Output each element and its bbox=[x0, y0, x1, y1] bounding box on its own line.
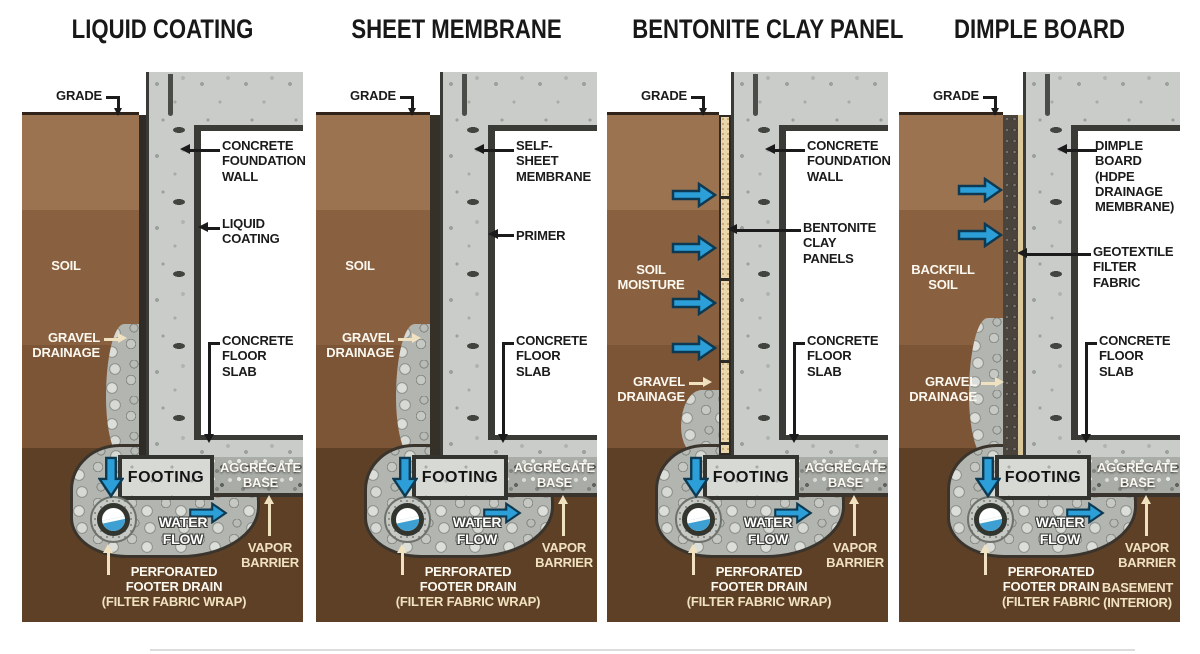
slab-label: CONCRETE FLOOR SLAB bbox=[516, 333, 597, 379]
drain-label: PERFORATED FOOTER DRAIN bbox=[991, 564, 1111, 595]
vapor-arrowhead-icon bbox=[1141, 495, 1151, 504]
grade-line bbox=[899, 112, 1003, 115]
wall-top-slab bbox=[1071, 72, 1180, 131]
gravel-leader bbox=[689, 382, 703, 385]
slab-leader-vertical bbox=[1085, 342, 1088, 436]
drain-leader bbox=[692, 553, 695, 575]
vapor-barrier-line bbox=[1085, 493, 1180, 497]
drain-sub-label: (FILTER FABRIC WRAP) bbox=[679, 594, 839, 609]
grade-leader-vertical bbox=[411, 96, 414, 108]
footing-label: FOOTING bbox=[1005, 470, 1081, 486]
basement-interior-label: BASEMENT (INTERIOR) bbox=[1095, 580, 1180, 611]
footing: FOOTING bbox=[118, 455, 214, 500]
vapor-leader bbox=[268, 504, 271, 536]
bottom-edge-line bbox=[150, 649, 1135, 651]
panel-bentonite-clay: BENTONITE CLAY PANEL FOOTING GRADE CONCR… bbox=[607, 0, 888, 654]
soil-label: SOIL bbox=[324, 258, 396, 273]
grade-arrowhead-icon bbox=[408, 108, 416, 116]
grade-leader-vertical bbox=[117, 96, 120, 108]
footing: FOOTING bbox=[703, 455, 799, 500]
water-down-arrow-icon bbox=[392, 456, 418, 498]
water-down-arrow-icon bbox=[98, 456, 124, 498]
gravel-arrowhead-icon bbox=[703, 377, 712, 387]
gravel-label: GRAVEL DRAINAGE bbox=[22, 330, 100, 361]
grade-label: GRADE bbox=[911, 88, 979, 103]
vapor-leader bbox=[1145, 504, 1148, 536]
panel-title: LIQUID COATING bbox=[47, 16, 277, 43]
bentonite-arrowhead-icon bbox=[727, 224, 737, 234]
dimple-board-layer bbox=[1003, 115, 1018, 455]
slab-arrowhead-icon bbox=[498, 434, 508, 443]
grade-arrowhead-icon bbox=[114, 108, 122, 116]
concrete-foundation-wall bbox=[731, 72, 786, 455]
soil-moisture-label: SOIL MOISTURE bbox=[615, 262, 687, 293]
slab-label: CONCRETE FLOOR SLAB bbox=[222, 333, 303, 379]
drain-pipe-icon bbox=[974, 503, 1007, 536]
grade-arrowhead-icon bbox=[699, 108, 707, 116]
vapor-barrier-label: VAPOR BARRIER bbox=[532, 540, 596, 571]
panel-title: SHEET MEMBRANE bbox=[341, 16, 571, 43]
concrete-foundation-wall bbox=[146, 72, 201, 455]
vapor-barrier-line bbox=[793, 493, 888, 497]
soil-moisture-arrow-icon bbox=[955, 222, 1005, 248]
primer-label: PRIMER bbox=[516, 228, 565, 243]
wall-leader bbox=[190, 149, 220, 152]
anchor-bolt bbox=[168, 74, 173, 116]
panel-dimple-board: DIMPLE BOARD FOOTING GRADE DIMPLE BOARD … bbox=[899, 0, 1180, 654]
drain-arrowhead-icon bbox=[688, 544, 698, 553]
panel-liquid-coating: LIQUID COATING FOOTING GRADE CONCRETE FO… bbox=[22, 0, 303, 654]
anchor-bolt bbox=[462, 74, 467, 116]
coating-arrowhead-icon bbox=[198, 222, 208, 232]
geotextile-leader bbox=[1027, 253, 1091, 256]
concrete-foundation-wall bbox=[1023, 72, 1078, 455]
drain-label: PERFORATED FOOTER DRAIN bbox=[114, 564, 234, 595]
vapor-barrier-line bbox=[502, 493, 597, 497]
slab-leader-vertical bbox=[502, 342, 505, 436]
drain-arrowhead-icon bbox=[397, 544, 407, 553]
slab-leader-vertical bbox=[208, 342, 211, 436]
soil-moisture-arrow-icon bbox=[669, 290, 719, 316]
sheet-membrane-layer bbox=[430, 115, 440, 455]
primer-arrowhead-icon bbox=[488, 229, 498, 239]
membrane-arrowhead-icon bbox=[474, 144, 484, 154]
panel-title: DIMPLE BOARD bbox=[924, 16, 1154, 43]
drain-leader bbox=[984, 553, 987, 575]
aggregate-label: AGGREGATE BASE bbox=[803, 460, 888, 491]
wall-top-slab bbox=[488, 72, 597, 131]
drain-leader bbox=[107, 553, 110, 575]
soil-moisture-arrow-icon bbox=[669, 335, 719, 361]
footer-drain-pipe bbox=[90, 496, 137, 543]
geotextile-arrowhead-icon bbox=[1017, 248, 1027, 258]
primer-leader bbox=[498, 234, 514, 237]
grade-label: GRADE bbox=[34, 88, 102, 103]
water-flow-label: WATER FLOW bbox=[1015, 514, 1105, 547]
vapor-arrowhead-icon bbox=[264, 495, 274, 504]
pipe-water bbox=[391, 514, 424, 536]
soil-moisture-arrow-icon bbox=[669, 182, 719, 208]
wall-top-slab bbox=[194, 72, 303, 131]
geotextile-label: GEOTEXTILE FILTER FABRIC bbox=[1093, 244, 1180, 290]
membrane-leader bbox=[484, 149, 514, 152]
gravel-label: GRAVEL DRAINAGE bbox=[899, 374, 977, 405]
water-flow-label: WATER FLOW bbox=[723, 514, 813, 547]
soil-label: SOIL bbox=[30, 258, 102, 273]
anchor-bolt bbox=[753, 74, 758, 116]
vapor-leader bbox=[562, 504, 565, 536]
vapor-arrowhead-icon bbox=[849, 495, 859, 504]
concrete-foundation-wall bbox=[440, 72, 495, 455]
bentonite-label: BENTONITE CLAY PANELS bbox=[803, 220, 888, 266]
gravel-leader bbox=[104, 338, 118, 341]
grade-arrowhead-icon bbox=[991, 108, 999, 116]
wall-arrowhead-icon bbox=[765, 144, 775, 154]
grade-leader-vertical bbox=[702, 96, 705, 108]
wall-arrowhead-icon bbox=[180, 144, 190, 154]
footing-label: FOOTING bbox=[713, 470, 789, 486]
vapor-barrier-label: VAPOR BARRIER bbox=[238, 540, 302, 571]
slab-arrowhead-icon bbox=[1081, 434, 1091, 443]
vapor-leader bbox=[853, 504, 856, 536]
drain-leader bbox=[401, 553, 404, 575]
water-flow-label: WATER FLOW bbox=[432, 514, 522, 547]
grade-label: GRADE bbox=[619, 88, 687, 103]
aggregate-label: AGGREGATE BASE bbox=[512, 460, 597, 491]
gravel-leader bbox=[398, 338, 412, 341]
vapor-arrowhead-icon bbox=[558, 495, 568, 504]
vapor-barrier-label: VAPOR BARRIER bbox=[823, 540, 887, 571]
slab-leader-vertical bbox=[793, 342, 796, 436]
aggregate-label: AGGREGATE BASE bbox=[1095, 460, 1180, 491]
gravel-drainage-column bbox=[106, 324, 139, 456]
drain-pipe-icon bbox=[682, 503, 715, 536]
footing-label: FOOTING bbox=[422, 470, 498, 486]
bentonite-clay-panel-layer bbox=[719, 115, 731, 455]
water-down-arrow-icon bbox=[683, 456, 709, 498]
foundation-diagram: FOOTING GRADE DIMPLE BOARD (HDPE DRAINAG… bbox=[899, 66, 1180, 622]
gravel-label: GRAVEL DRAINAGE bbox=[316, 330, 394, 361]
wall-leader bbox=[775, 149, 805, 152]
bentonite-leader bbox=[737, 229, 801, 232]
footing: FOOTING bbox=[995, 455, 1091, 500]
vapor-barrier-label: VAPOR BARRIER bbox=[1115, 540, 1179, 571]
coating-leader bbox=[208, 227, 220, 230]
grade-label: GRADE bbox=[328, 88, 396, 103]
gravel-label: GRAVEL DRAINAGE bbox=[607, 374, 685, 405]
footing: FOOTING bbox=[412, 455, 508, 500]
vapor-barrier-line bbox=[208, 493, 303, 497]
gravel-arrowhead-icon bbox=[995, 377, 1004, 387]
dimple-board-arrowhead-icon bbox=[1057, 144, 1067, 154]
drain-sub-label: (FILTER FABRIC WRAP) bbox=[388, 594, 548, 609]
drain-pipe-icon bbox=[391, 503, 424, 536]
soil-moisture-arrow-icon bbox=[669, 235, 719, 261]
gravel-arrowhead-icon bbox=[412, 333, 421, 343]
footer-drain-pipe bbox=[967, 496, 1014, 543]
grade-leader-vertical bbox=[994, 96, 997, 108]
pipe-water bbox=[97, 514, 130, 536]
coating-label: LIQUID COATING bbox=[222, 216, 280, 247]
footing-label: FOOTING bbox=[128, 470, 204, 486]
drain-pipe-icon bbox=[97, 503, 130, 536]
panel-title: BENTONITE CLAY PANEL bbox=[632, 16, 862, 43]
gravel-drainage-column bbox=[396, 324, 430, 456]
liquid-coating-layer bbox=[139, 115, 146, 455]
foundation-diagram: FOOTING GRADE CONCRETE FOUNDATION WALL B… bbox=[607, 66, 888, 622]
water-flow-label: WATER FLOW bbox=[138, 514, 228, 547]
wall-label: CONCRETE FOUNDATION WALL bbox=[222, 138, 306, 184]
gravel-arrowhead-icon bbox=[118, 333, 127, 343]
drain-label: PERFORATED FOOTER DRAIN bbox=[699, 564, 819, 595]
foundation-diagram: FOOTING GRADE CONCRETE FOUNDATION WALL L… bbox=[22, 66, 303, 622]
backfill-soil-label: BACKFILL SOIL bbox=[907, 262, 979, 293]
membrane-label: SELF- SHEET MEMBRANE bbox=[516, 138, 591, 184]
soil-moisture-arrow-icon bbox=[955, 177, 1005, 203]
wall-label: CONCRETE FOUNDATION WALL bbox=[807, 138, 891, 184]
slab-arrowhead-icon bbox=[204, 434, 214, 443]
anchor-bolt bbox=[1045, 74, 1050, 116]
dimple-board-label: DIMPLE BOARD (HDPE DRAINAGE MEMBRANE) bbox=[1095, 138, 1180, 215]
drain-label: PERFORATED FOOTER DRAIN bbox=[408, 564, 528, 595]
pipe-water bbox=[974, 514, 1007, 536]
foundation-diagram: FOOTING GRADE SELF- SHEET MEMBRANE PRIME… bbox=[316, 66, 597, 622]
wall-top-slab bbox=[779, 72, 888, 131]
pipe-water bbox=[682, 514, 715, 536]
slab-label: CONCRETE FLOOR SLAB bbox=[807, 333, 888, 379]
gravel-leader bbox=[981, 382, 995, 385]
water-down-arrow-icon bbox=[975, 456, 1001, 498]
aggregate-label: AGGREGATE BASE bbox=[218, 460, 303, 491]
panel-sheet-membrane: SHEET MEMBRANE FOOTING GRADE SELF- SHEET… bbox=[316, 0, 597, 654]
drain-sub-label: (FILTER FABRIC WRAP) bbox=[94, 594, 254, 609]
slab-arrowhead-icon bbox=[789, 434, 799, 443]
drain-arrowhead-icon bbox=[103, 544, 113, 553]
slab-label: CONCRETE FLOOR SLAB bbox=[1099, 333, 1180, 379]
drain-arrowhead-icon bbox=[980, 544, 990, 553]
dimple-board-leader bbox=[1067, 149, 1097, 152]
footer-drain-pipe bbox=[384, 496, 431, 543]
footer-drain-pipe bbox=[675, 496, 722, 543]
